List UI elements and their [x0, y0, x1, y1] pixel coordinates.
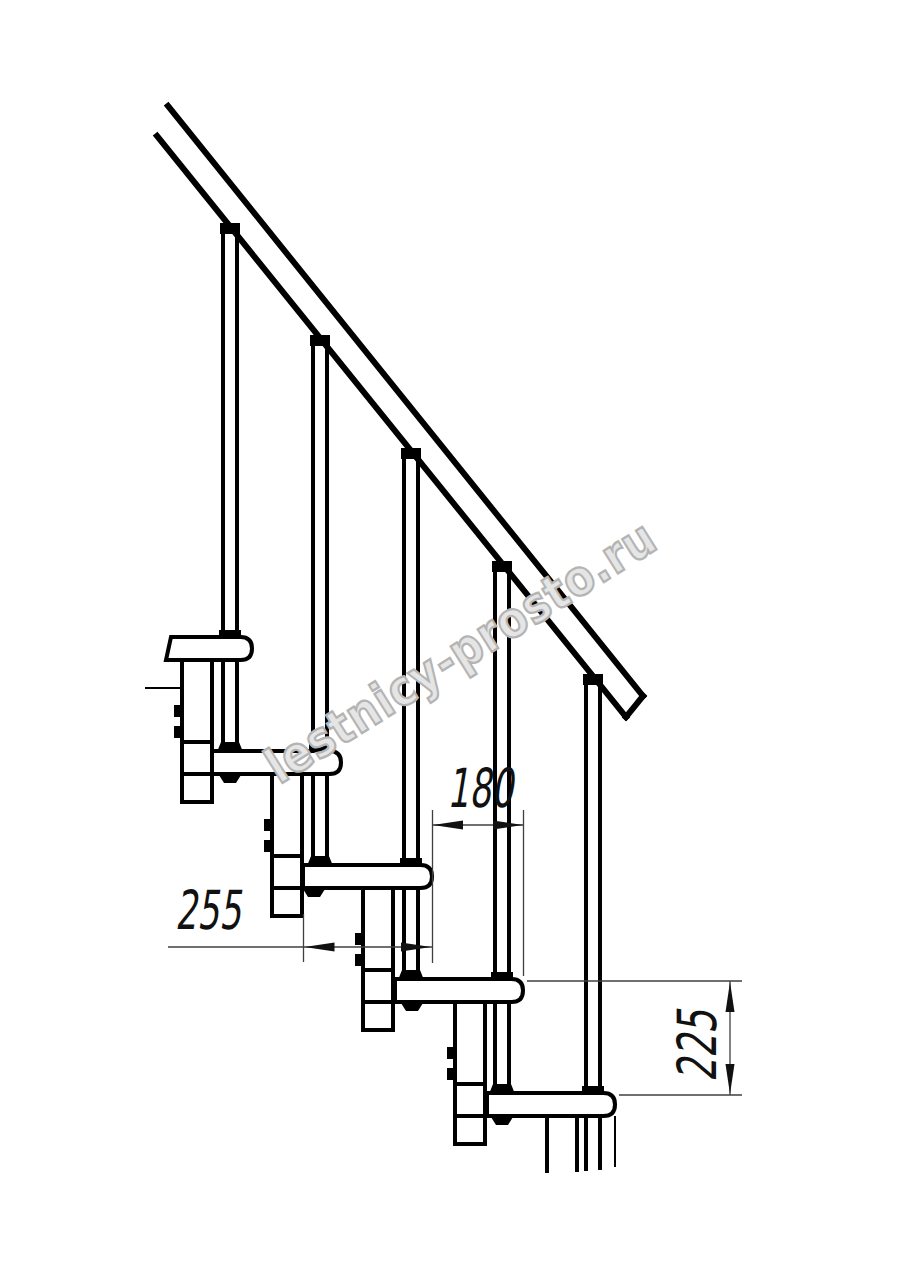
rail-connector-icon — [401, 448, 421, 459]
page: { "colors": { "line": "#000000", "dimens… — [0, 0, 914, 1280]
drawing-canvas: 180 255 225 — [0, 0, 914, 1280]
foot-icon — [217, 742, 243, 752]
tread-step5 — [166, 637, 252, 660]
handrail-end-cut — [626, 696, 643, 717]
baluster-1 — [223, 231, 237, 745]
bolt-icon — [355, 954, 364, 966]
bolt-icon — [264, 819, 273, 831]
rail-connector-icon — [310, 335, 330, 346]
dimension-label-going: 180 — [447, 757, 516, 820]
staircase-technical-drawing: 180 255 225 — [0, 0, 914, 1280]
collar-icon — [309, 744, 331, 752]
dimension-label-tread-depth: 255 — [175, 879, 243, 942]
bolt-icon — [174, 726, 183, 738]
arrow-left-icon — [305, 943, 335, 952]
handrail — [157, 106, 643, 717]
tread-step2 — [395, 979, 523, 1002]
rail-connector-icon — [220, 223, 240, 234]
bolt-icon — [447, 1068, 456, 1080]
collar-icon — [582, 1086, 604, 1094]
nut-icon — [401, 1003, 423, 1011]
collar-icon — [219, 630, 241, 638]
baluster-2 — [313, 343, 327, 859]
tread-step1 — [487, 1093, 615, 1116]
bolt-icon — [355, 933, 364, 945]
nut-icon — [491, 1117, 513, 1125]
support-column-under-step5 — [145, 660, 212, 802]
nut-icon — [303, 889, 325, 897]
baluster-3 — [404, 456, 418, 973]
bolt-icon — [447, 1047, 456, 1059]
support-column-under-step4 — [264, 774, 302, 916]
support-column-under-step2 — [447, 1002, 485, 1144]
arrow-left-icon — [433, 821, 463, 830]
tread-step3 — [303, 865, 432, 888]
rail-connector-icon — [492, 561, 512, 572]
nut-icon — [219, 775, 241, 783]
dimension-rise-225: 225 — [527, 981, 742, 1095]
dimension-label-rise: 225 — [666, 1008, 729, 1082]
rail-connector-icon — [583, 674, 603, 685]
bolt-icon — [174, 705, 183, 717]
arrow-up-icon — [726, 982, 735, 1012]
collar-icon — [491, 972, 513, 980]
foot-icon — [307, 856, 333, 866]
bolt-icon — [264, 840, 273, 852]
foot-icon — [398, 970, 424, 980]
support-column-under-step1 — [547, 1116, 615, 1171]
support-column-under-step3 — [355, 888, 393, 1030]
foot-icon — [489, 1084, 515, 1094]
tread-step4 — [212, 751, 341, 774]
collar-icon — [400, 858, 422, 866]
